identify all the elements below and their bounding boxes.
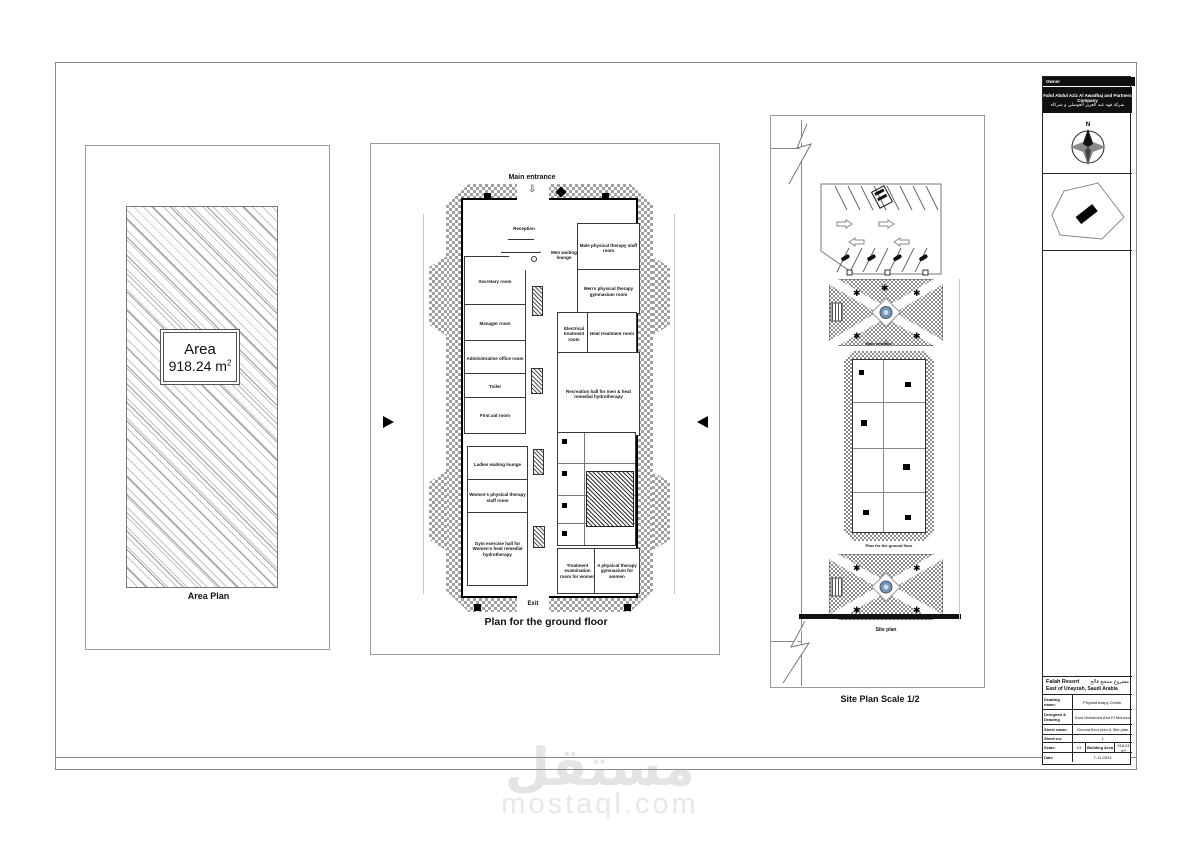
site-plan-label: Site plan [841, 627, 931, 633]
table-row: Sheet name: Ground floor plan & Site pla… [1043, 724, 1132, 734]
area-title: Area [184, 341, 216, 358]
building-area-label: Building Area [1086, 743, 1115, 752]
room-recreation-hall: Recreation hall for men & heat remedial … [557, 352, 640, 436]
sheet-name-label: Sheet name: [1043, 725, 1073, 734]
garden-lower: ✱✱ ✱✱ [829, 554, 943, 620]
hydrotherapy-cluster [557, 432, 636, 546]
planter [533, 449, 544, 475]
sheet-name-value: Ground floor plan & Site plan [1073, 725, 1132, 734]
wc-fixture [562, 471, 567, 476]
site-entrance-arrow-icon: ⇩ [883, 339, 889, 347]
watermark-latin: mostaql.com [400, 790, 800, 819]
area-value: 918.24 m2 [169, 358, 232, 374]
room-heat-treatment: Heat treatment room [587, 312, 637, 356]
north-arrow-section: N [1043, 113, 1132, 174]
project-name-ar: مشروع منتجع فالح [1090, 679, 1129, 685]
svg-text:✱: ✱ [913, 288, 921, 298]
exit-label: Exit [521, 601, 545, 608]
building-area-value: 918.24 m² [1115, 743, 1132, 752]
dimension-line [423, 214, 424, 594]
dimension-line [674, 214, 675, 594]
date-value: 7-11-2024 [1073, 753, 1132, 762]
site-building-interior [852, 359, 926, 533]
room-men-gym: Men's physical therapy gymnasium room [577, 269, 640, 314]
site-location-section [1043, 174, 1132, 251]
wc-fixture [562, 503, 567, 508]
drawing-sheet: مستقل mostaql.com Area 918.24 m2 Area Pl… [0, 0, 1191, 842]
drawing-name-value: Physiotherapy Center [1073, 695, 1132, 709]
owner-label: Owner [1046, 79, 1060, 84]
room-women-treatment: Treatment examination room for women [557, 548, 598, 594]
street-edge [799, 614, 961, 619]
area-plan-hatch [126, 206, 278, 588]
section-marker-icon [624, 604, 631, 611]
wc-fixture [562, 439, 567, 444]
project-name-en: Falah Resort [1046, 679, 1079, 685]
date-label: Date [1043, 753, 1073, 762]
table-row: Drawing name: Physiotherapy Center [1043, 694, 1132, 709]
svg-text:✱: ✱ [853, 288, 861, 298]
planter [531, 368, 543, 394]
sheet-no-label: Sheet no: [1043, 735, 1073, 742]
svg-text:N: N [1085, 122, 1089, 128]
owner-label-bar: Owner [1043, 77, 1135, 86]
project-location: East of Unayzah, Saudi Arabia [1043, 685, 1132, 694]
road-line [801, 120, 802, 686]
area-plan-caption: Area Plan [86, 591, 331, 601]
area-label-box: Area 918.24 m2 [160, 329, 240, 385]
area-plan-panel: Area 918.24 m2 Area Plan [85, 145, 330, 650]
pool-area [586, 471, 634, 527]
section-marker-icon [602, 193, 609, 200]
drawing-name-label: Drawing name: [1043, 695, 1073, 709]
pergola [831, 578, 842, 596]
svg-text:✱: ✱ [853, 331, 861, 341]
site-entrance-label: Main entrance [849, 342, 909, 347]
svg-text:✱: ✱ [913, 331, 921, 341]
table-row: Sheet no: 1 [1043, 734, 1132, 742]
site-plan-panel: ✱✱ ✱✱✱ Main entrance ⇩ Plan for the grou… [770, 115, 985, 688]
paver-wedge [429, 256, 447, 336]
designer-value: Esra Mohamed Abd El Mohsen [1073, 710, 1132, 724]
room-electrical-treatment: Electrical treatment room [557, 312, 591, 356]
furniture [863, 510, 869, 515]
owner-company-block: Fahd Abdul Aziz Al Awadhaj and Partners … [1043, 87, 1132, 113]
furniture [905, 515, 911, 520]
planter [533, 526, 545, 548]
furniture [859, 370, 864, 375]
svg-text:✱: ✱ [913, 563, 921, 573]
paver-wedge [429, 471, 447, 551]
sheet-no-value: 1 [1073, 735, 1132, 742]
direction-arrow-icon [697, 416, 708, 428]
svg-text:✱: ✱ [853, 563, 861, 573]
furniture [903, 464, 910, 470]
room-women-staff: Women's physical therapy staff room [467, 479, 528, 516]
scale-label: Scale: [1043, 743, 1073, 752]
north-arrow-icon: N [1058, 118, 1118, 168]
road-break-icon [781, 124, 823, 186]
owner-name-en: Fahd Abdul Aziz Al Awadhaj and Partners … [1043, 93, 1132, 103]
site-location-sketch [1046, 177, 1130, 247]
table-row: Designed & Drawing Esra Mohamed Abd El M… [1043, 709, 1132, 724]
room-first-aid: First aid room [464, 397, 526, 434]
planter [532, 286, 543, 316]
room-women-gym: A physical therapy gymnasium for women [594, 548, 640, 594]
room-ladies-lounge: Ladies waiting lounge [467, 446, 528, 483]
room-admin-office: Administrative office room [464, 340, 526, 377]
site-building-label: Plan for the ground floor [831, 544, 947, 549]
reception-chair [531, 256, 537, 262]
title-block: Owner Fahd Abdul Aziz Al Awadhaj and Par… [1042, 76, 1131, 765]
table-row: Date 7-11-2024 [1043, 752, 1132, 762]
ground-floor-panel: Main entrance ⇩ Reception Secretary room… [370, 143, 720, 655]
site-plan-caption: Site Plan Scale 1/2 [790, 694, 970, 704]
room-women-hall: Gym exercise hall for Women's heat remed… [467, 512, 528, 586]
scale-value: 1/1 [1073, 743, 1086, 752]
parking-lot [819, 176, 949, 281]
table-row-scale: Scale: 1/1 Building Area 918.24 m² [1043, 742, 1132, 752]
dimension-line [959, 279, 960, 620]
ground-floor-caption: Plan for the ground floor [371, 616, 721, 628]
room-male-staff: Male physical therapy staff room [577, 223, 640, 273]
paver-wedge [652, 256, 670, 336]
garden-upper: ✱✱ ✱✱✱ [829, 279, 943, 346]
room-men-lounge-label: Men waiting lounge [550, 250, 578, 261]
wc-fixture [562, 531, 567, 536]
furniture [905, 382, 911, 387]
section-marker-icon [484, 193, 491, 200]
direction-arrow-icon [383, 416, 394, 428]
project-info-section: Falah Resort مشروع منتجع فالح East of Un… [1043, 676, 1132, 767]
entrance-arrow-icon: ⇩ [528, 184, 536, 195]
room-secretary: Secretary room [464, 256, 526, 308]
main-entrance-label: Main entrance [482, 174, 582, 182]
designer-label: Designed & Drawing [1043, 710, 1073, 724]
svg-text:✱: ✱ [881, 283, 889, 293]
room-reception-label: Reception [489, 226, 559, 231]
pergola [831, 303, 842, 321]
road-break-icon [777, 621, 821, 685]
furniture [861, 420, 867, 426]
paver-wedge [652, 471, 670, 551]
owner-name-ar: شركة فهد عبد العزيز العوضلي و شركاه [1051, 103, 1125, 108]
sheet-inner-bottom-line [55, 757, 1137, 758]
section-marker-icon [474, 604, 481, 611]
room-manager: Manager room [464, 304, 526, 344]
